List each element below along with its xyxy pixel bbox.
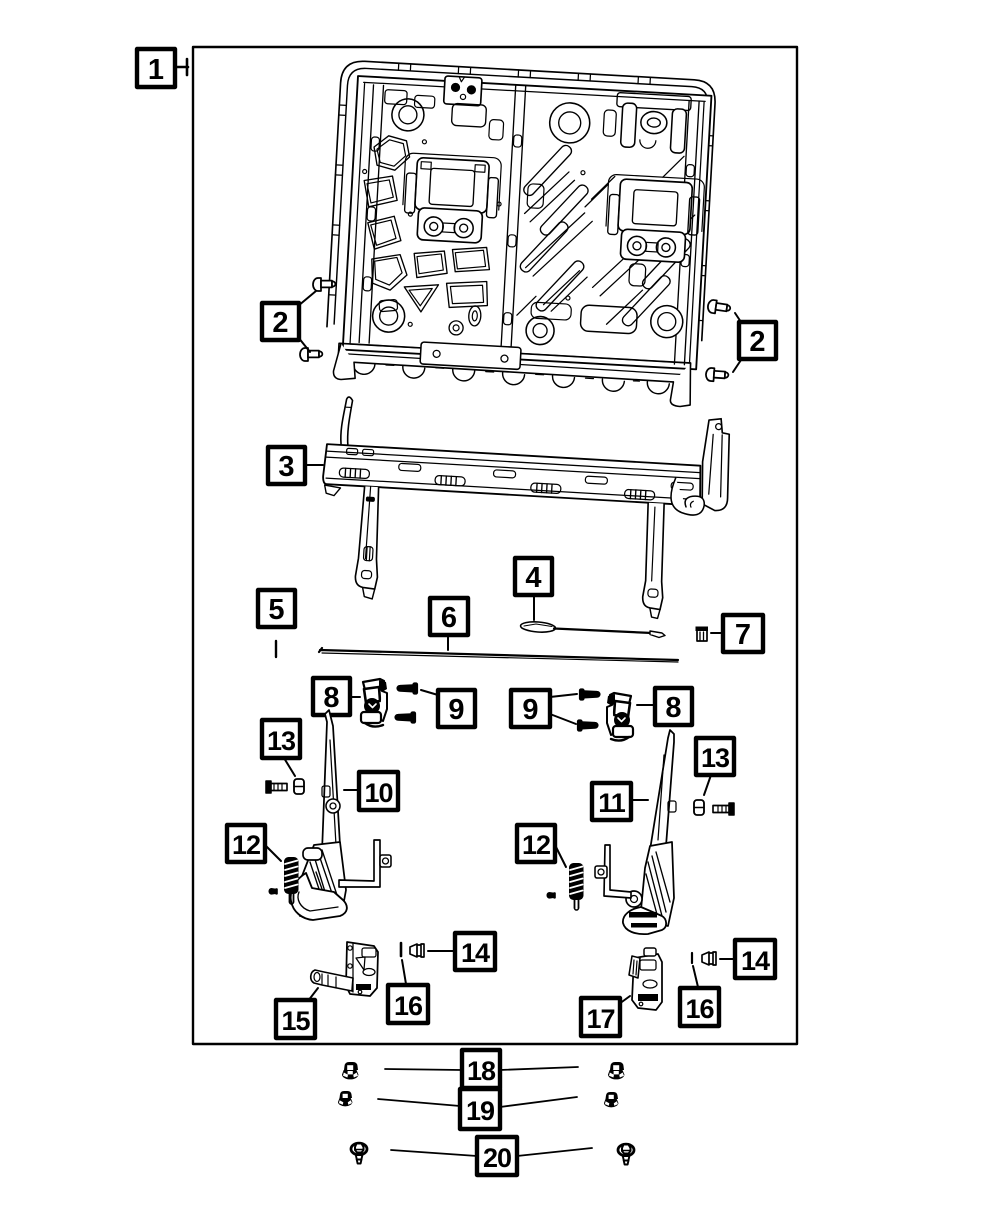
- svg-text:3: 3: [278, 451, 294, 483]
- svg-text:8: 8: [323, 682, 339, 714]
- svg-text:2: 2: [272, 307, 288, 339]
- svg-text:18: 18: [467, 1056, 496, 1086]
- svg-text:9: 9: [522, 694, 538, 726]
- svg-text:13: 13: [267, 726, 296, 756]
- svg-text:2: 2: [749, 326, 765, 358]
- svg-text:6: 6: [441, 602, 457, 634]
- svg-text:7: 7: [735, 619, 751, 651]
- svg-text:12: 12: [232, 830, 260, 860]
- svg-text:1: 1: [148, 54, 164, 86]
- svg-text:10: 10: [364, 778, 392, 808]
- svg-text:19: 19: [466, 1096, 495, 1126]
- svg-text:14: 14: [461, 938, 490, 968]
- svg-text:5: 5: [268, 594, 284, 626]
- svg-text:15: 15: [281, 1006, 310, 1036]
- svg-text:14: 14: [741, 946, 770, 976]
- svg-text:8: 8: [665, 692, 681, 724]
- svg-text:11: 11: [598, 788, 626, 818]
- svg-text:17: 17: [586, 1004, 614, 1034]
- svg-text:12: 12: [522, 830, 550, 860]
- svg-text:20: 20: [483, 1143, 511, 1173]
- svg-text:4: 4: [525, 562, 541, 594]
- svg-text:16: 16: [685, 994, 714, 1024]
- svg-text:16: 16: [394, 991, 423, 1021]
- svg-text:9: 9: [448, 694, 464, 726]
- svg-text:13: 13: [701, 743, 730, 773]
